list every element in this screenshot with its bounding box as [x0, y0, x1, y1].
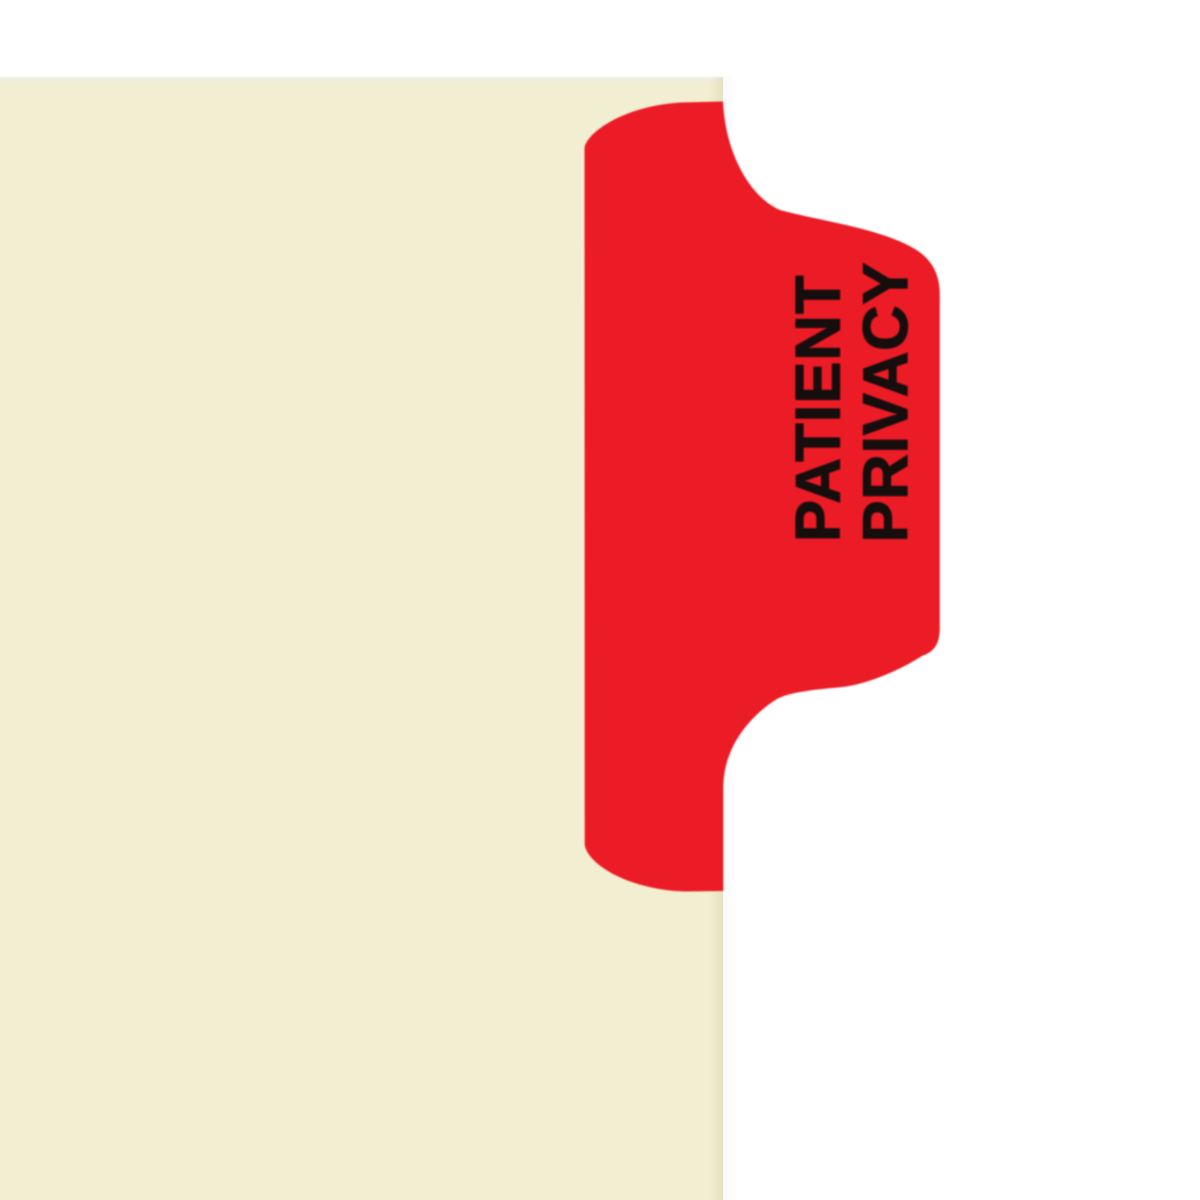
svg-text:PRIVACY: PRIVACY [851, 262, 921, 543]
svg-text:PATIENT: PATIENT [784, 274, 854, 542]
